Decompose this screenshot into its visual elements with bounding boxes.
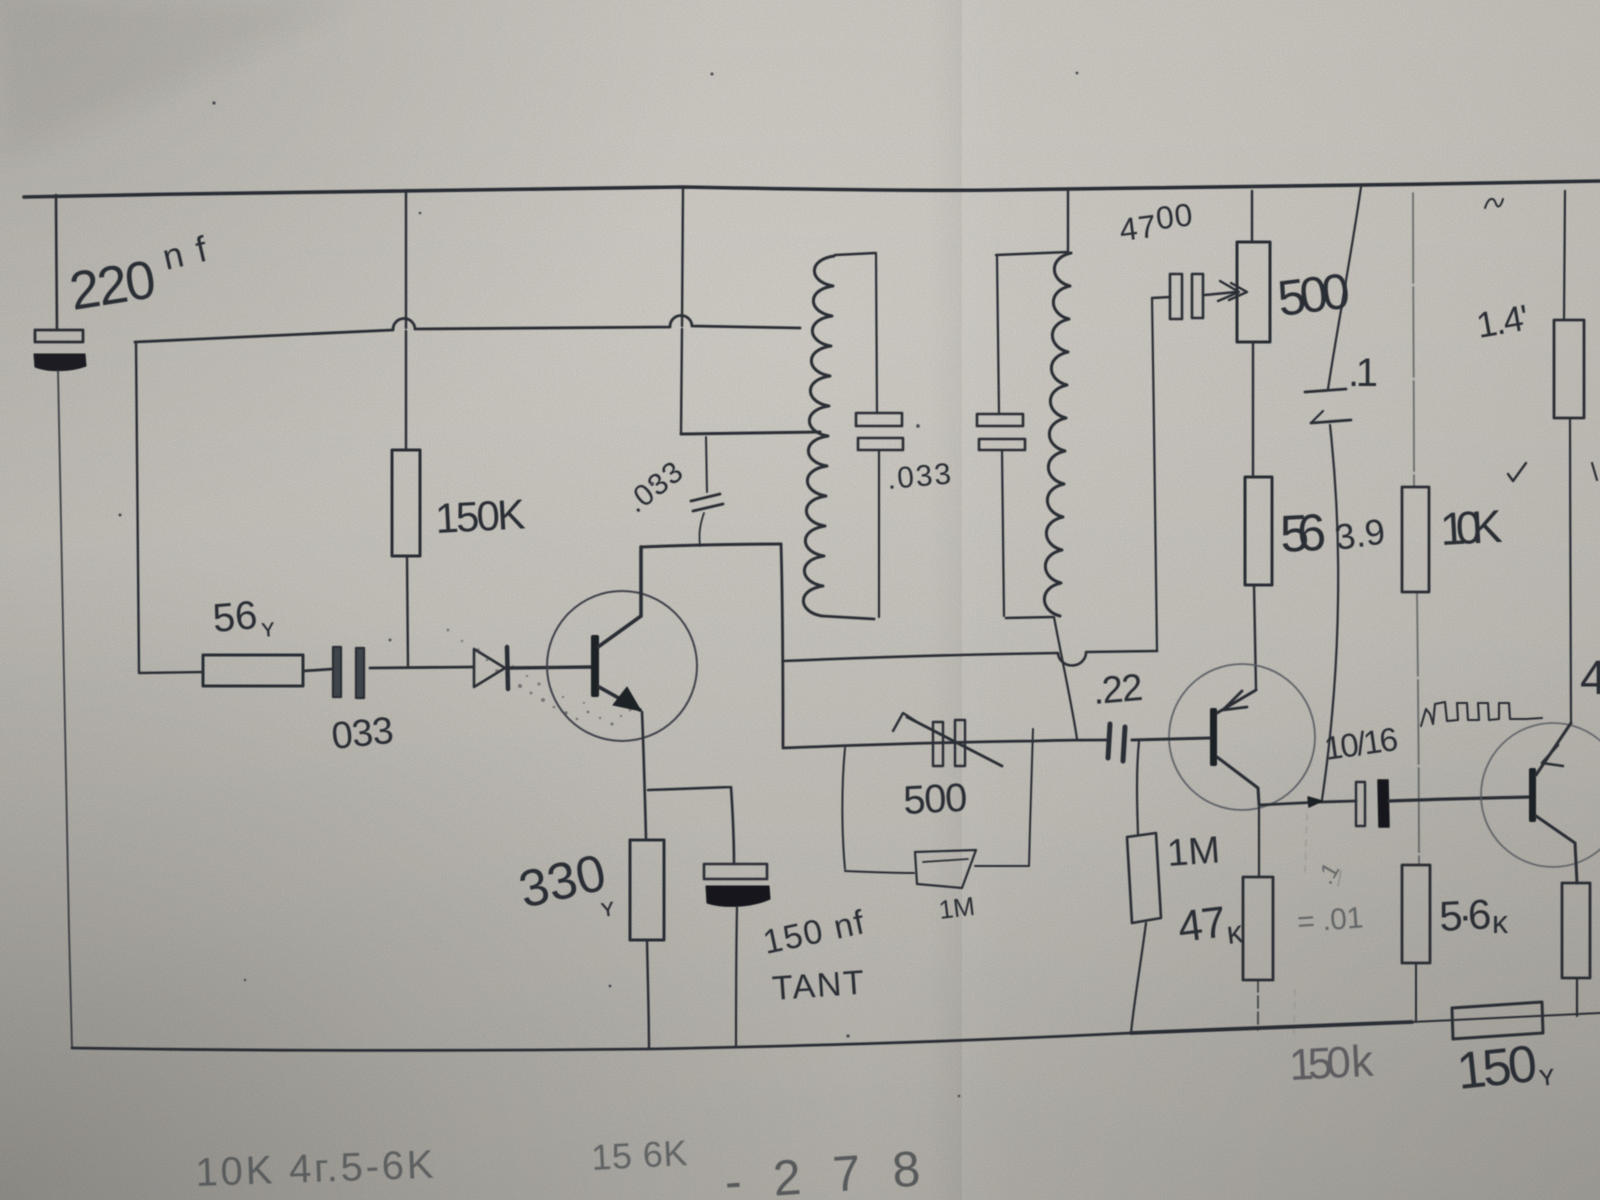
svg-text:.22: .22: [1091, 667, 1144, 713]
svg-text:15 6K: 15 6K: [590, 1132, 688, 1178]
svg-text:033: 033: [330, 710, 396, 758]
svg-text:150: 150: [1454, 1035, 1540, 1101]
svg-text:1M: 1M: [937, 891, 976, 925]
svg-text:.1: .1: [1348, 351, 1378, 395]
svg-text:1M: 1M: [1166, 829, 1222, 875]
svg-text:56: 56: [1279, 504, 1328, 564]
svg-text:56: 56: [211, 593, 259, 641]
svg-text:= .01: = .01: [1296, 901, 1364, 939]
svg-text:150 k: 150 k: [1288, 1037, 1375, 1090]
svg-text:10K: 10K: [1439, 500, 1504, 555]
svg-text:5·6: 5·6: [1438, 890, 1492, 940]
svg-text:500: 500: [902, 776, 968, 823]
svg-text:150K: 150K: [434, 490, 526, 542]
svg-text:47: 47: [1175, 897, 1229, 951]
svg-text:4: 4: [1580, 652, 1600, 705]
svg-text:500: 500: [1275, 263, 1353, 327]
svg-text:κ: κ: [1492, 904, 1509, 940]
svg-text:TANT: TANT: [771, 964, 865, 1008]
svg-text:10K 4г.5-6K: 10K 4г.5-6K: [195, 1143, 435, 1195]
svg-text:3.9: 3.9: [1332, 510, 1387, 558]
